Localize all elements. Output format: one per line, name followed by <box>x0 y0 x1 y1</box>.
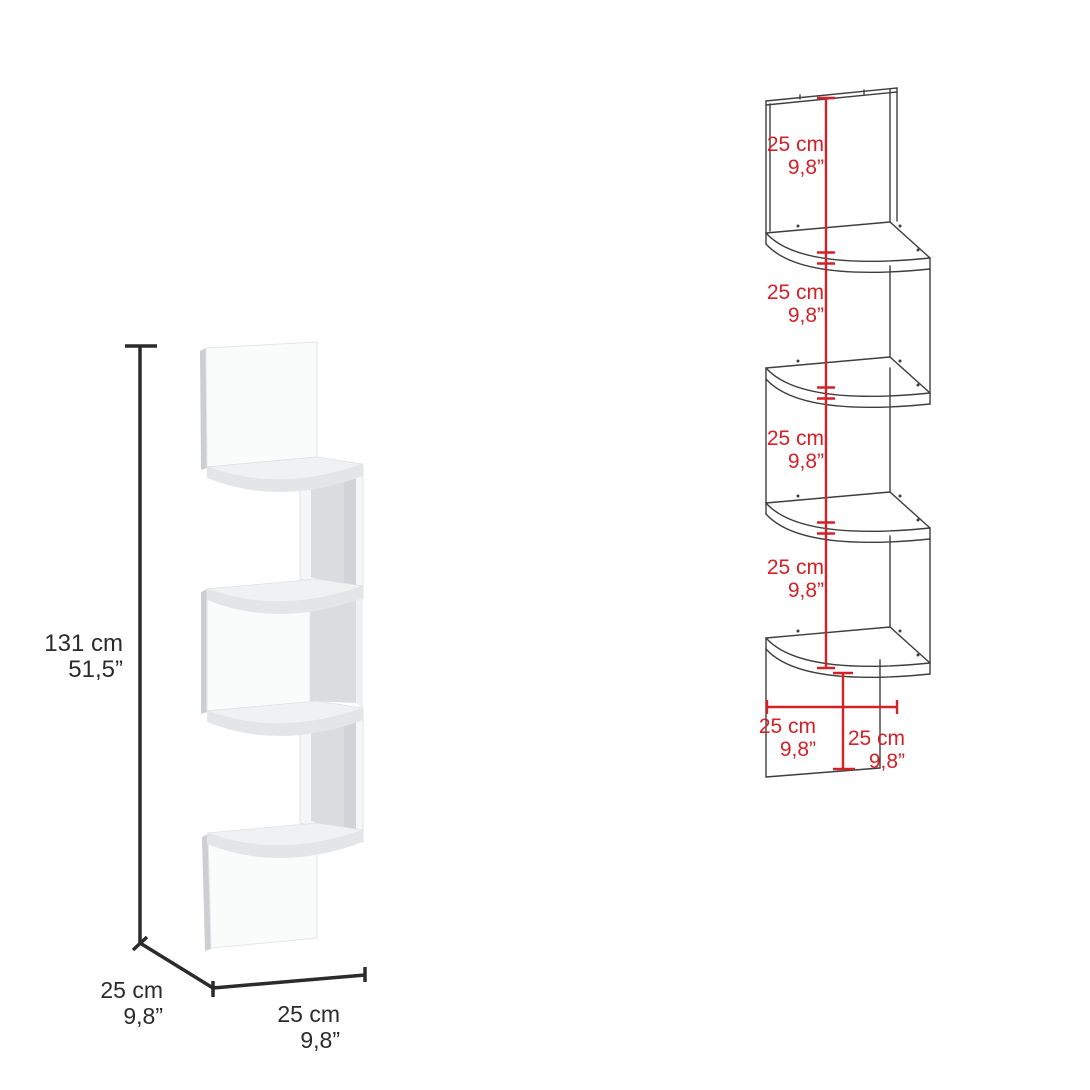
dimension-diagram: 131 cm 51,5” 25 cm 9,8” 25 cm 9,8” 25 cm… <box>0 0 1090 1090</box>
bottom-width-dimension-line <box>767 700 897 714</box>
section-1-in: 9,8” <box>767 156 824 179</box>
section-1-dimension-label: 25 cm 9,8” <box>767 133 824 179</box>
height-in: 51,5” <box>44 657 123 683</box>
width-dimension-label: 25 cm 9,8” <box>277 1001 340 1053</box>
bottom-width-cm: 25 cm <box>759 715 816 738</box>
bottom-depth-cm: 25 cm <box>848 727 905 750</box>
section-2-cm: 25 cm <box>767 281 824 304</box>
bottom-width-in: 9,8” <box>759 738 816 761</box>
section-4-cm: 25 cm <box>767 556 824 579</box>
section-3-cm: 25 cm <box>767 427 824 450</box>
depth-cm: 25 cm <box>100 977 163 1003</box>
depth-dimension-label: 25 cm 9,8” <box>100 977 163 1029</box>
bottom-depth-dimension-label: 25 cm 9,8” <box>848 727 905 773</box>
section-1-cm: 25 cm <box>767 133 824 156</box>
section-3-dimension-label: 25 cm 9,8” <box>767 427 824 473</box>
bottom-width-dimension-label: 25 cm 9,8” <box>759 715 816 761</box>
depth-in: 9,8” <box>100 1003 163 1029</box>
diagram-artwork <box>0 0 1090 1090</box>
section-4-dimension-label: 25 cm 9,8” <box>767 556 824 602</box>
bottom-depth-in: 9,8” <box>848 750 905 773</box>
height-dimension-line <box>125 346 157 950</box>
section-3-in: 9,8” <box>767 450 824 473</box>
width-dimension-line <box>213 967 365 988</box>
section-2-in: 9,8” <box>767 304 824 327</box>
height-dimension-label: 131 cm 51,5” <box>44 631 123 683</box>
width-cm: 25 cm <box>277 1001 340 1027</box>
height-cm: 131 cm <box>44 631 123 657</box>
width-in: 9,8” <box>277 1027 340 1053</box>
section-2-dimension-label: 25 cm 9,8” <box>767 281 824 327</box>
section-4-in: 9,8” <box>767 579 824 602</box>
shelf-render-3d <box>200 342 363 951</box>
